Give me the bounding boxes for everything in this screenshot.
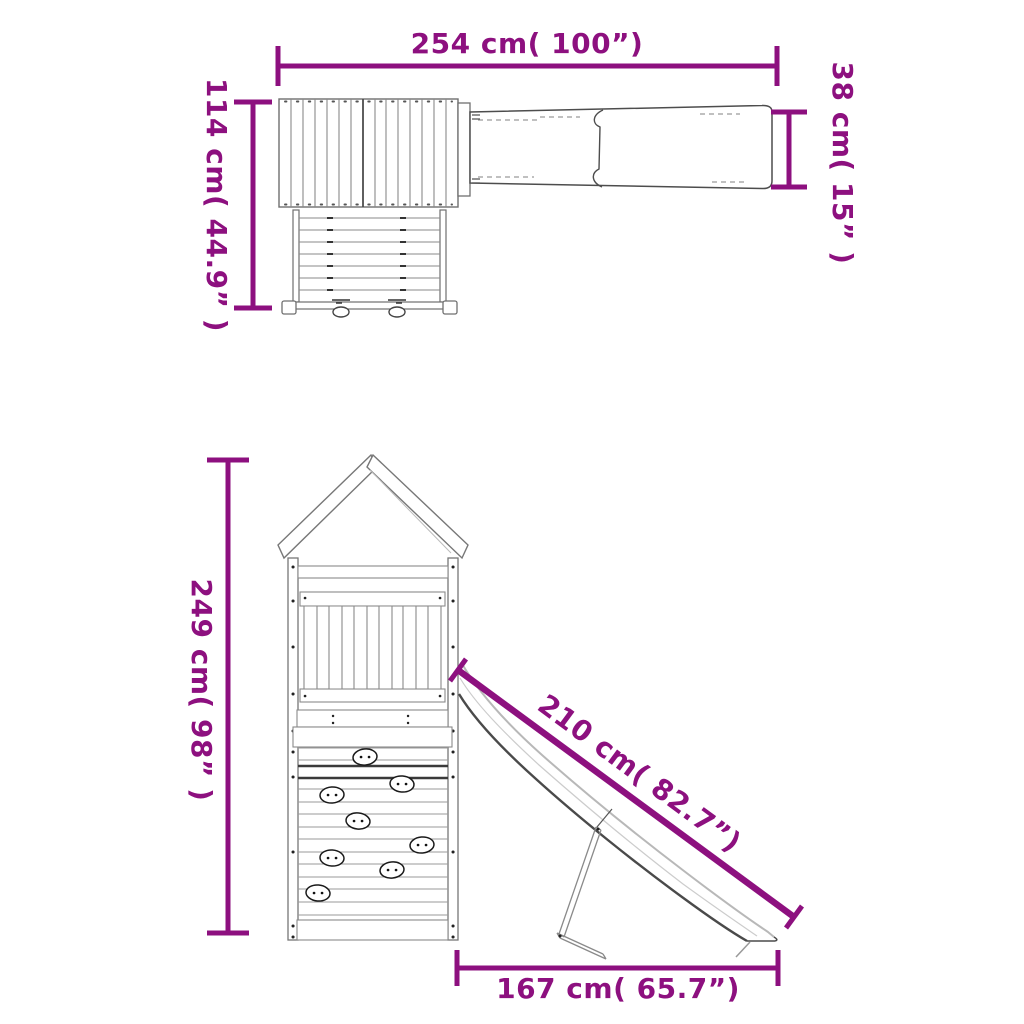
railing-lower-rail (300, 689, 445, 702)
dim-label-height: 249 cm( 98” ) (185, 579, 218, 802)
wall-planks-dark (298, 766, 448, 778)
base-foot-left (282, 301, 296, 314)
roof-inner-edge (370, 470, 451, 553)
wall-top-view (282, 210, 457, 317)
deck-fascia (293, 727, 452, 747)
dimension-height: 249 cm( 98” ) (185, 460, 249, 933)
climbing-holds (305, 748, 434, 902)
roof-top-view (279, 99, 458, 207)
dimension-top-depth: 114 cm( 44.9” ) (200, 78, 272, 332)
playset-dimension-diagram: 254 cm( 100”) 114 cm( 44.9” ) 38 cm( 15”… (0, 0, 1024, 1024)
post-right (448, 558, 458, 940)
base-foot-right (443, 301, 457, 314)
railing-balusters (304, 606, 441, 689)
railing-upper-rail (300, 592, 445, 606)
dimension-slide-width: 38 cm( 15” ) (771, 62, 859, 265)
slide-entry-board (458, 103, 470, 196)
dim-label-top-width: 254 cm( 100”) (411, 27, 644, 60)
tower-roof (278, 455, 468, 558)
slide-end (747, 937, 777, 941)
tower-deck (293, 710, 452, 747)
roof-board-right (367, 455, 468, 558)
front-view: 249 cm( 98” ) 210 cm( 82.7”) 167 cm( 65.… (185, 455, 802, 1005)
slide-top-view (458, 103, 772, 196)
top-rail (298, 566, 448, 578)
dim-label-slide-footprint: 167 cm( 65.7”) (496, 972, 740, 1005)
climbing-hold (352, 748, 378, 766)
roof-outline (279, 99, 458, 207)
dim-label-slide-width: 38 cm( 15” ) (826, 62, 859, 265)
dim-line (458, 670, 794, 917)
slide-body-outline (470, 105, 772, 188)
diagram-canvas: 254 cm( 100”) 114 cm( 44.9” ) 38 cm( 15”… (0, 0, 1024, 1024)
wall-left-rail (293, 210, 299, 302)
dimension-slide-length: 210 cm( 82.7”) (450, 659, 802, 928)
dimension-slide-footprint: 167 cm( 65.7”) (457, 950, 778, 1005)
wall-right-rail (440, 210, 446, 302)
slide-end-foot (736, 942, 750, 957)
roof-board-left (278, 455, 377, 558)
slide-support-leg (557, 809, 612, 959)
climbing-hold (305, 884, 330, 902)
deck-board (297, 710, 448, 727)
bottom-plank (297, 920, 448, 940)
wall-slats (299, 218, 440, 302)
railing-bolts (305, 598, 440, 696)
dimension-top-width: 254 cm( 100”) (278, 27, 777, 86)
top-view: 254 cm( 100”) 114 cm( 44.9” ) 38 cm( 15”… (200, 27, 859, 332)
tower-railing (298, 566, 448, 702)
base-beam (286, 302, 453, 309)
dim-label-top-depth: 114 cm( 44.9” ) (200, 78, 233, 332)
post-left (288, 558, 298, 940)
